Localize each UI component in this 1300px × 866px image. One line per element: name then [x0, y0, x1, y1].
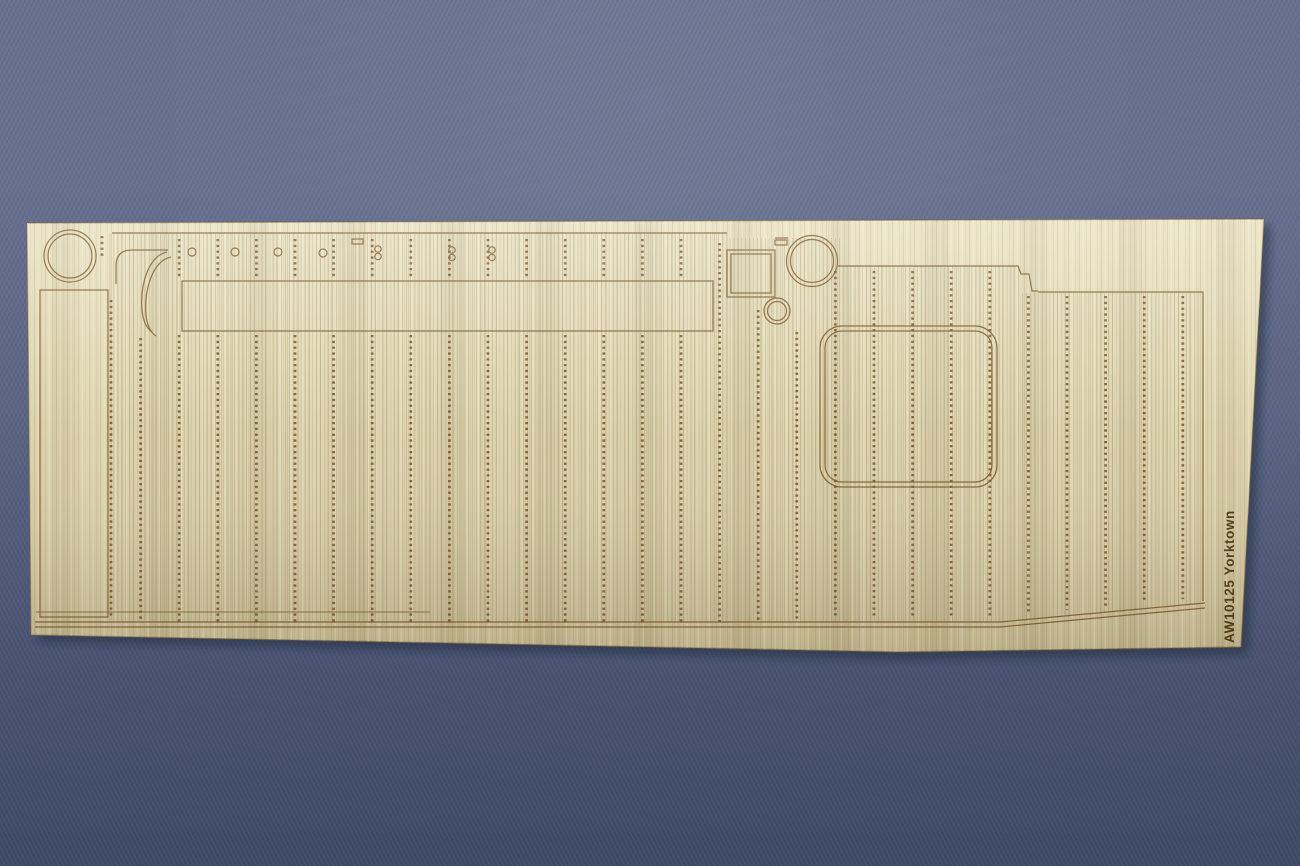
sheet-lighting-overlay [27, 219, 1264, 652]
photo-canvas: AW10125 Yorktown [0, 0, 1300, 866]
wood-sheet-photo: AW10125 Yorktown [0, 0, 1300, 866]
